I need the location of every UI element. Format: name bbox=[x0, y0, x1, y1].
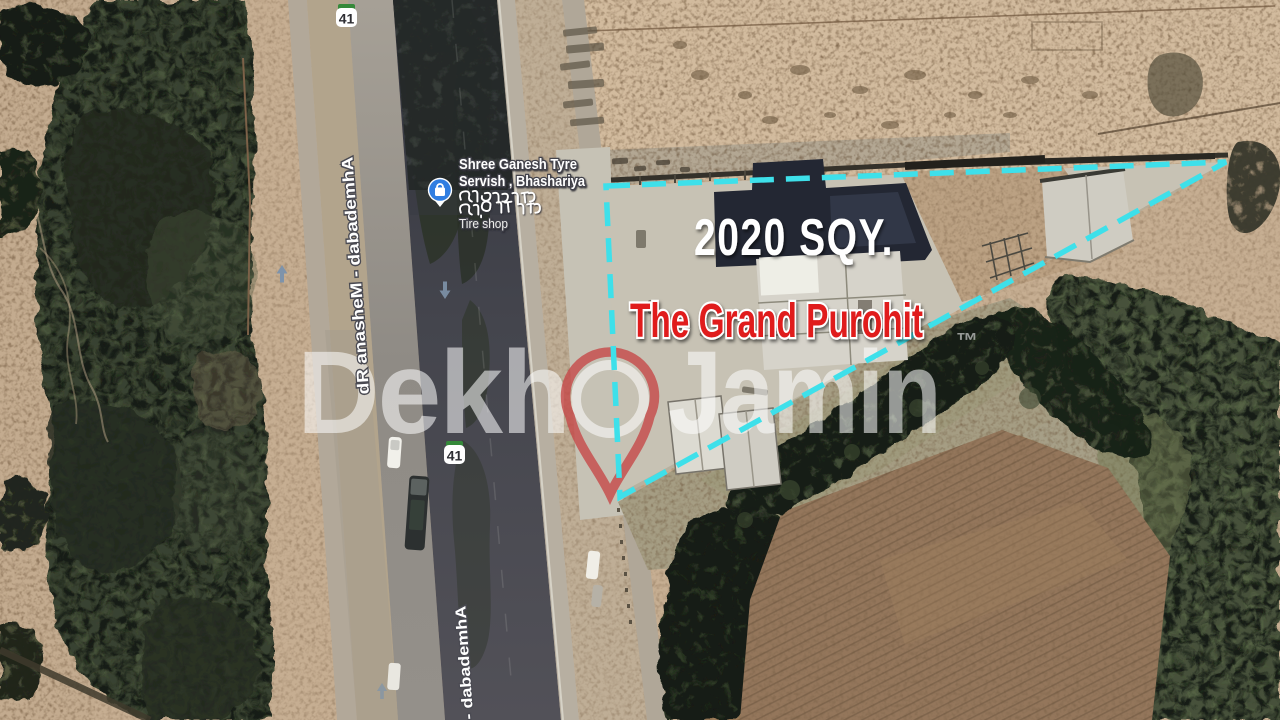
svg-text:™: ™ bbox=[956, 328, 978, 353]
svg-text:41: 41 bbox=[339, 11, 355, 27]
svg-text:Tire shop: Tire shop bbox=[459, 216, 508, 231]
svg-text:Dekh: Dekh bbox=[297, 327, 569, 459]
svg-text:41: 41 bbox=[447, 448, 463, 464]
svg-text:2020 SQY.: 2020 SQY. bbox=[694, 209, 894, 267]
svg-text:Servish , Bhashariya: Servish , Bhashariya bbox=[459, 173, 586, 190]
svg-text:Shree Ganesh Tyre: Shree Ganesh Tyre bbox=[459, 156, 577, 173]
svg-text:The Grand Purohit: The Grand Purohit bbox=[630, 295, 923, 348]
